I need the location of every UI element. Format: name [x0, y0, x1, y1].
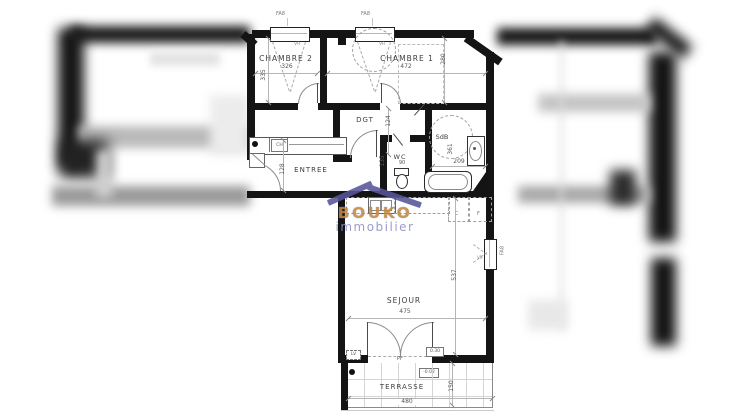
- blur-shape: [528, 300, 568, 330]
- room-label-dgt: DGT: [350, 116, 380, 124]
- wc-door-leaf: [393, 133, 403, 145]
- room-label-chambre1: CHAMBRE 1: [372, 54, 442, 63]
- blur-shape: [210, 95, 248, 155]
- dim-chambre2-h: 335: [261, 63, 267, 87]
- kitchen-fridge-box: [468, 197, 492, 222]
- level-door-box: 0.30: [426, 347, 444, 357]
- wall-corridor-a: [252, 103, 298, 110]
- chambre2-door-leaf: [317, 83, 318, 103]
- window-ref-leader: [372, 18, 373, 26]
- dim-wc-h: 135: [380, 150, 386, 172]
- dim-line: [348, 318, 486, 319]
- wall-corridor-b: [318, 103, 380, 110]
- blur-shape: [560, 40, 563, 330]
- shutter-label: VR: [294, 43, 300, 48]
- french-door-leaf: [367, 322, 368, 355]
- dim-line: [432, 166, 486, 167]
- wall-terrasse-left: [341, 363, 348, 410]
- dim-terrasse-h: 150: [449, 375, 455, 397]
- window-ref-label: FA8: [361, 12, 370, 17]
- lv-box: LV: [346, 350, 361, 360]
- window-top-left-line: [271, 33, 307, 34]
- washbasin-bowl: [469, 141, 482, 161]
- wall-top-right: [392, 30, 474, 38]
- dim-line: [327, 73, 486, 74]
- window-ref-label: FA8: [276, 12, 285, 17]
- watermark-tagline: immobilier: [328, 220, 422, 234]
- wall-right-upper: [486, 52, 494, 196]
- wall-top-mid: [307, 30, 355, 38]
- terrasse-edge-outer: [341, 410, 494, 411]
- wall-wc-north-a: [380, 135, 392, 142]
- blur-shape: [70, 26, 250, 43]
- wardrobe-chambre1: [398, 44, 444, 104]
- entree-closet-divider: [269, 138, 270, 152]
- blur-shape: [610, 170, 636, 205]
- washbasin-tap: [473, 147, 476, 150]
- wall-wc-north-b: [410, 135, 425, 142]
- blur-shape: [150, 52, 220, 66]
- chambre1-door-leaf: [381, 83, 382, 103]
- dim-wc-w: 90: [394, 161, 410, 166]
- blur-shape: [651, 258, 676, 346]
- dim-entree-h: 128: [280, 157, 286, 181]
- dim-chambre1-h: 280: [441, 47, 447, 71]
- watermark-roof-icon: [327, 181, 373, 206]
- french-door-arc-left: [367, 322, 401, 356]
- dim-sdb-w: 209: [445, 159, 473, 165]
- room-label-entree: ENTREE: [288, 166, 334, 174]
- dim-dgt-h: 124: [386, 111, 392, 131]
- dim-sdb-h: 361: [448, 138, 454, 160]
- dim-chambre2-w: 326: [262, 64, 312, 70]
- kitchen-cooker-box: [448, 197, 470, 222]
- wall-corridor-c: [400, 103, 486, 110]
- room-label-terrasse: TERRASSE: [372, 383, 432, 391]
- blur-shape: [497, 28, 657, 45]
- blur-shape: [649, 52, 676, 242]
- blur-shape: [52, 186, 250, 206]
- blur-shape: [96, 150, 112, 198]
- watermark-logo: BOUKO immobilier: [320, 180, 430, 238]
- window-ref-label: FA8: [501, 241, 506, 261]
- terrasse-edge-right: [492, 363, 493, 408]
- dim-chambre1-w: 472: [381, 64, 431, 70]
- window-ref-leader: [287, 18, 288, 26]
- dim-terrasse-w: 480: [392, 399, 422, 405]
- entree-shelf: [249, 153, 265, 168]
- window-top-left: [270, 27, 310, 42]
- kitchen-dash-line: [448, 197, 449, 220]
- dgt-door-arc: [350, 130, 378, 158]
- dgt-door-leaf: [376, 130, 377, 157]
- fridge-label: F: [477, 212, 480, 217]
- shutter-label: VR: [477, 256, 483, 260]
- dim-sejour-w: 475: [390, 309, 420, 315]
- terrasse-edge-bottom: [348, 407, 493, 408]
- boiler-dot: [252, 141, 258, 147]
- dim-line: [268, 38, 269, 103]
- french-door-label: PF: [394, 357, 406, 362]
- wall-nib: [338, 38, 346, 45]
- chambre2-door-arc: [298, 83, 319, 104]
- window-sejour-line: [489, 240, 490, 267]
- blur-shape: [538, 94, 650, 112]
- entree-closet-midline: [289, 144, 344, 145]
- bathtub-inner: [428, 174, 468, 190]
- floorplan-screenshot: FA8 FA8 FA8 VR VR VR PF CH: [0, 0, 750, 420]
- wall-top-left: [252, 30, 272, 38]
- room-label-sejour: SEJOUR: [380, 296, 428, 305]
- dim-sejour-h: 537: [452, 264, 458, 286]
- room-label-chambre2: CHAMBRE 2: [253, 54, 319, 63]
- wall-chambre-divider: [320, 38, 327, 103]
